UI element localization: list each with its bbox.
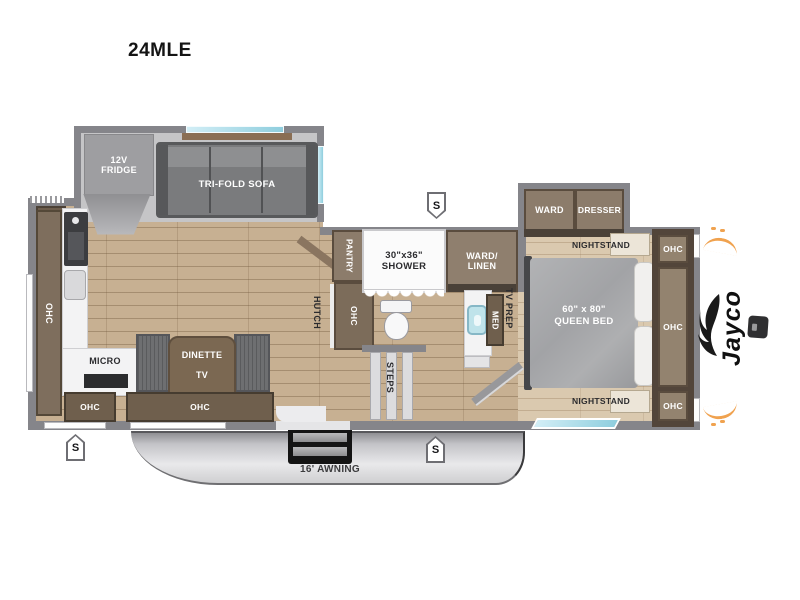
toilet-bowl bbox=[384, 312, 409, 340]
right-wall-window-top bbox=[693, 234, 700, 258]
dinette-bench-left bbox=[136, 334, 170, 392]
sofa-label: TRI-FOLD SOFA bbox=[159, 179, 315, 190]
dresser-label: DRESSER bbox=[578, 205, 621, 215]
s-marker-letter: S bbox=[72, 442, 79, 454]
step-tread bbox=[402, 352, 413, 420]
fridge: 12V FRIDGE bbox=[84, 134, 154, 196]
bed-size-label: 60" x 80" bbox=[530, 304, 638, 315]
bedroom-window bbox=[531, 418, 621, 429]
entry-landing bbox=[276, 406, 326, 422]
nightstand-top-label: NIGHTSTAND bbox=[548, 240, 654, 250]
hitch-icon bbox=[747, 315, 768, 338]
bedroom-ohc-middle-label: OHC bbox=[663, 322, 683, 332]
kitchen-sink bbox=[64, 270, 86, 300]
floorplan-title: 24MLE bbox=[128, 40, 192, 62]
shower-size-label: 30"x36" bbox=[385, 250, 423, 261]
slideout-window bbox=[186, 126, 284, 133]
sofa-back bbox=[166, 147, 308, 167]
ward-cabinet: WARD bbox=[524, 189, 575, 231]
vanity-step bbox=[464, 356, 490, 368]
bath-sink-basin bbox=[474, 315, 481, 326]
bedroom-ohc-bottom-label: OHC bbox=[663, 401, 683, 411]
nightstand-bottom-label: NIGHTSTAND bbox=[548, 396, 654, 406]
bath-sink bbox=[467, 305, 487, 335]
bottom-window-dinette bbox=[130, 422, 226, 429]
kitchen-ohc-cabinet: OHC bbox=[36, 210, 62, 416]
s-marker-letter: S bbox=[433, 200, 440, 212]
stove-burner bbox=[72, 217, 79, 224]
window-shelf bbox=[182, 133, 292, 140]
bottom-window-left bbox=[44, 422, 106, 429]
bedroom-ohc-bottom: OHC bbox=[658, 391, 688, 421]
cap-accent-dot bbox=[720, 420, 725, 423]
pantry-label: PANTRY bbox=[345, 239, 354, 273]
bed-slideout-base bbox=[524, 229, 624, 237]
entry-door-opening bbox=[276, 421, 350, 430]
s-marker-top: S bbox=[427, 192, 446, 219]
bedroom-ohc-middle: OHC bbox=[658, 267, 688, 387]
queen-bed: 60" x 80" QUEEN BED bbox=[530, 258, 638, 388]
left-wall-window bbox=[26, 274, 33, 392]
ohc-bottom-small: OHC bbox=[64, 392, 116, 422]
s-marker-left: S bbox=[66, 434, 85, 461]
shower-curtain bbox=[364, 289, 444, 300]
bedroom-ohc-top-label: OHC bbox=[663, 244, 683, 254]
kitchen-ohc-label: OHC bbox=[44, 303, 54, 324]
cap-accent-swoosh bbox=[703, 401, 739, 422]
tv-prep-label: TV PREP bbox=[504, 288, 514, 352]
bed-slideout-wall bbox=[624, 183, 630, 237]
hutch-label: HUTCH bbox=[312, 296, 322, 350]
dinette-tv-label: TV bbox=[170, 370, 234, 380]
microwave bbox=[84, 374, 128, 388]
micro-label: MICRO bbox=[82, 356, 128, 366]
right-wall-window-bottom bbox=[693, 398, 700, 422]
step-tread bbox=[370, 352, 381, 420]
ward-linen-label-1: WARD/ bbox=[466, 251, 498, 261]
s-marker-letter: S bbox=[432, 444, 439, 456]
med-label: MED bbox=[491, 311, 500, 330]
entry-step-tread bbox=[293, 447, 347, 456]
cap-accent-swoosh bbox=[703, 235, 739, 256]
ohc-bottom-small-label: OHC bbox=[80, 402, 100, 412]
med-cabinet: MED bbox=[486, 294, 504, 346]
dresser-cabinet: DRESSER bbox=[575, 189, 624, 231]
front-vent-ticks bbox=[30, 196, 64, 203]
floorplan-24mle: 24MLE 16' AWNING 12V FRIDGE TRI-FOLD SOF… bbox=[0, 0, 800, 600]
pantry-cabinet: PANTRY bbox=[332, 230, 366, 282]
ohc-bottom-long-label: OHC bbox=[190, 402, 210, 412]
bedroom-ohc-top: OHC bbox=[658, 235, 688, 263]
shower: 30"x36" SHOWER bbox=[362, 229, 446, 293]
dinette-label: DINETTE bbox=[170, 350, 234, 360]
ward-label: WARD bbox=[535, 205, 564, 215]
jayco-logo-text: Jayco bbox=[718, 280, 746, 376]
dinette-table: DINETTE TV bbox=[168, 336, 236, 394]
bed-type-label: QUEEN BED bbox=[530, 316, 638, 327]
steps-label: STEPS bbox=[385, 362, 395, 412]
oven bbox=[68, 232, 84, 260]
hutch-ohc-label: OHC bbox=[349, 306, 359, 326]
dinette-bench-right bbox=[234, 334, 270, 392]
fridge-label: 12V FRIDGE bbox=[92, 155, 146, 176]
ward-linen-closet: WARD/ LINEN bbox=[446, 230, 518, 292]
slideout-side-window bbox=[317, 146, 324, 204]
cap-accent-dot bbox=[711, 227, 716, 230]
awning-label: 16' AWNING bbox=[230, 464, 430, 475]
tri-fold-sofa: TRI-FOLD SOFA bbox=[156, 142, 318, 218]
cap-accent-dot bbox=[720, 229, 725, 232]
shower-label: SHOWER bbox=[382, 261, 427, 272]
bath-lower-wall bbox=[362, 345, 426, 352]
ward-linen-label-2: LINEN bbox=[466, 261, 498, 271]
range-stove bbox=[64, 212, 88, 266]
ohc-bottom-long: OHC bbox=[126, 392, 274, 422]
cap-accent-dot bbox=[711, 423, 716, 426]
hitch-pin bbox=[752, 324, 757, 331]
entry-step-tread bbox=[293, 433, 347, 442]
